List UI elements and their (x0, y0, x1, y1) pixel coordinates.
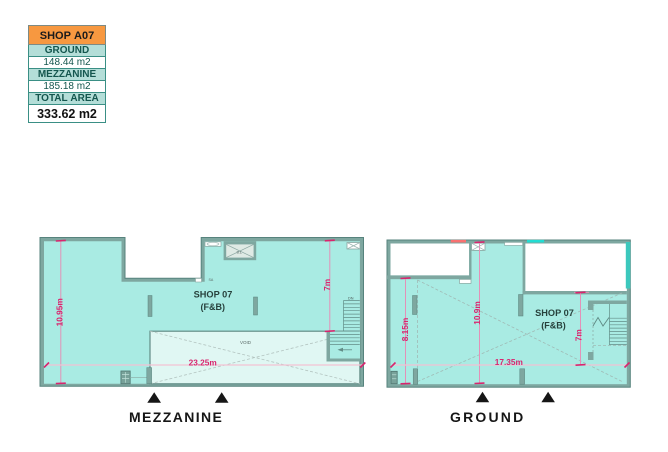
svg-text:17.35m: 17.35m (495, 357, 523, 367)
svg-text:SA: SA (209, 278, 214, 282)
svg-text:10.9m: 10.9m (472, 301, 482, 325)
svg-text:SHOP 07: SHOP 07 (194, 290, 233, 300)
svg-text:(F&B): (F&B) (201, 302, 226, 312)
svg-text:23.25m: 23.25m (189, 357, 217, 367)
svg-text:10.95m: 10.95m (55, 298, 65, 326)
svg-text:(F&B): (F&B) (541, 320, 566, 330)
svg-text:VOID: VOID (240, 340, 252, 345)
svg-text:S.L: S.L (237, 250, 242, 254)
svg-text:DN: DN (348, 296, 354, 300)
svg-text:SHOP 07: SHOP 07 (535, 308, 574, 318)
svg-text:8.15m: 8.15m (400, 318, 410, 342)
svg-text:7m: 7m (322, 279, 332, 291)
svg-text:7m: 7m (574, 329, 584, 341)
